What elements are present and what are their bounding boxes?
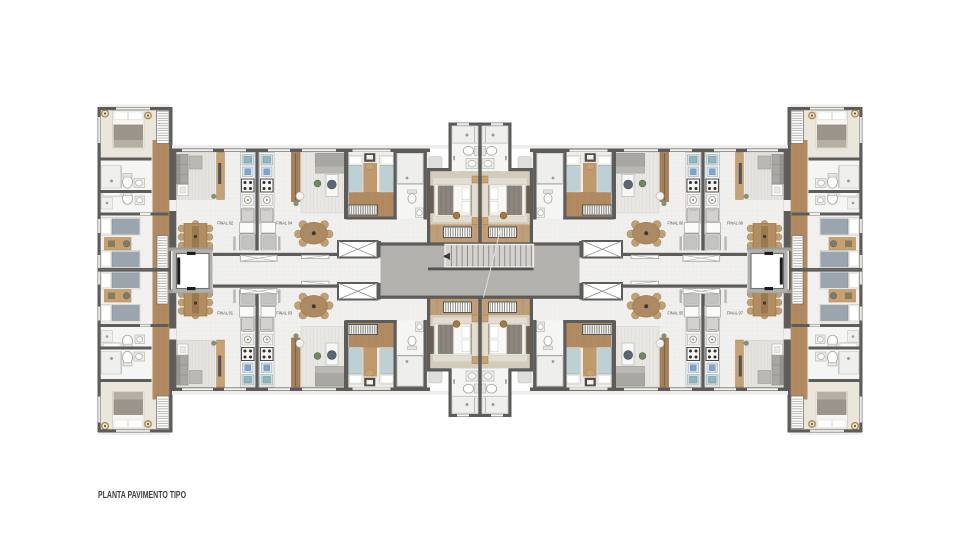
svg-text:FINAL 08: FINAL 08 (727, 221, 743, 226)
svg-text:FINAL 05: FINAL 05 (668, 311, 684, 316)
svg-text:FINAL 04: FINAL 04 (276, 221, 292, 226)
svg-text:FINAL 02: FINAL 02 (217, 221, 233, 226)
svg-text:FINAL 07: FINAL 07 (727, 311, 743, 316)
svg-text:FINAL 06: FINAL 06 (668, 221, 684, 226)
svg-text:FINAL 03: FINAL 03 (276, 311, 292, 316)
svg-text:FINAL 01: FINAL 01 (217, 311, 233, 316)
svg-text:PLANTA PAVIMENTO TIPO: PLANTA PAVIMENTO TIPO (98, 490, 186, 501)
